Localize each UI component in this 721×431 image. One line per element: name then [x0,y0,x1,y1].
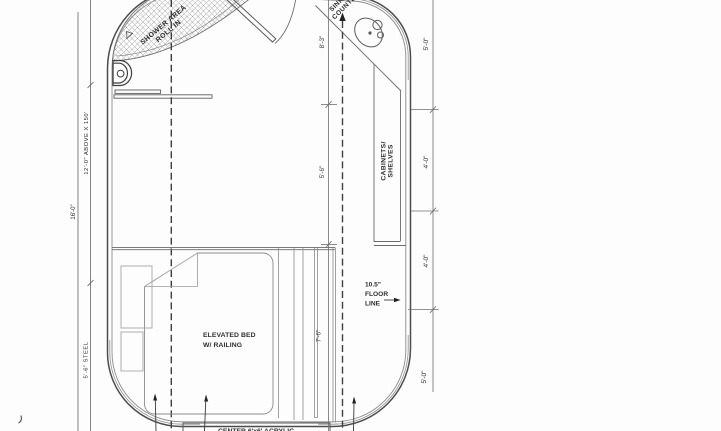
svg-text:CABINETS/: CABINETS/ [381,141,388,180]
svg-text:4'-0": 4'-0" [423,254,430,268]
svg-text:10.5": 10.5" [365,282,381,289]
svg-text:W/ RAILING: W/ RAILING [203,342,242,349]
svg-text:5'-6" STEEL: 5'-6" STEEL [84,341,90,378]
svg-text:16'-0": 16'-0" [71,204,77,219]
svg-text:12'-0" ABOVE X 150': 12'-0" ABOVE X 150' [84,111,90,174]
svg-text:5'-0": 5'-0" [423,37,430,51]
svg-text:FLOOR: FLOOR [365,291,388,298]
svg-text:ELEVATED BED: ELEVATED BED [203,332,256,339]
svg-text:8'-3": 8'-3" [319,36,326,49]
svg-text:4'-0": 4'-0" [423,155,430,169]
svg-text:LINE: LINE [365,301,381,308]
svg-text:7'-6": 7'-6" [316,330,323,343]
svg-text:5'-6": 5'-6" [319,166,326,179]
svg-text:SHELVES: SHELVES [388,144,395,177]
svg-text:5'-0": 5'-0" [421,370,428,384]
